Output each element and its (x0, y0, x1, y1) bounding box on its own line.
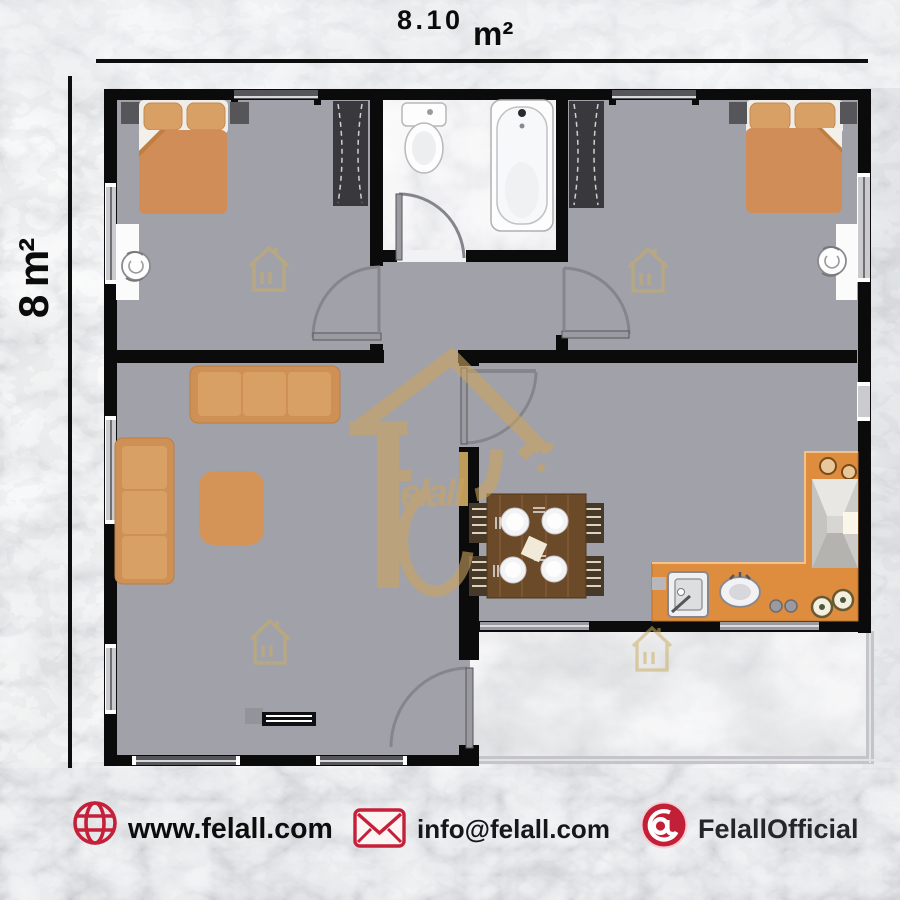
svg-text:FelallOfficial: FelallOfficial (698, 814, 859, 844)
svg-text:8.10: 8.10 (397, 5, 464, 35)
svg-text:info@felall.com: info@felall.com (417, 814, 610, 844)
svg-text:www.felall.com: www.felall.com (127, 813, 333, 845)
svg-text:m²: m² (473, 15, 513, 52)
svg-text:8 m²: 8 m² (10, 238, 57, 318)
